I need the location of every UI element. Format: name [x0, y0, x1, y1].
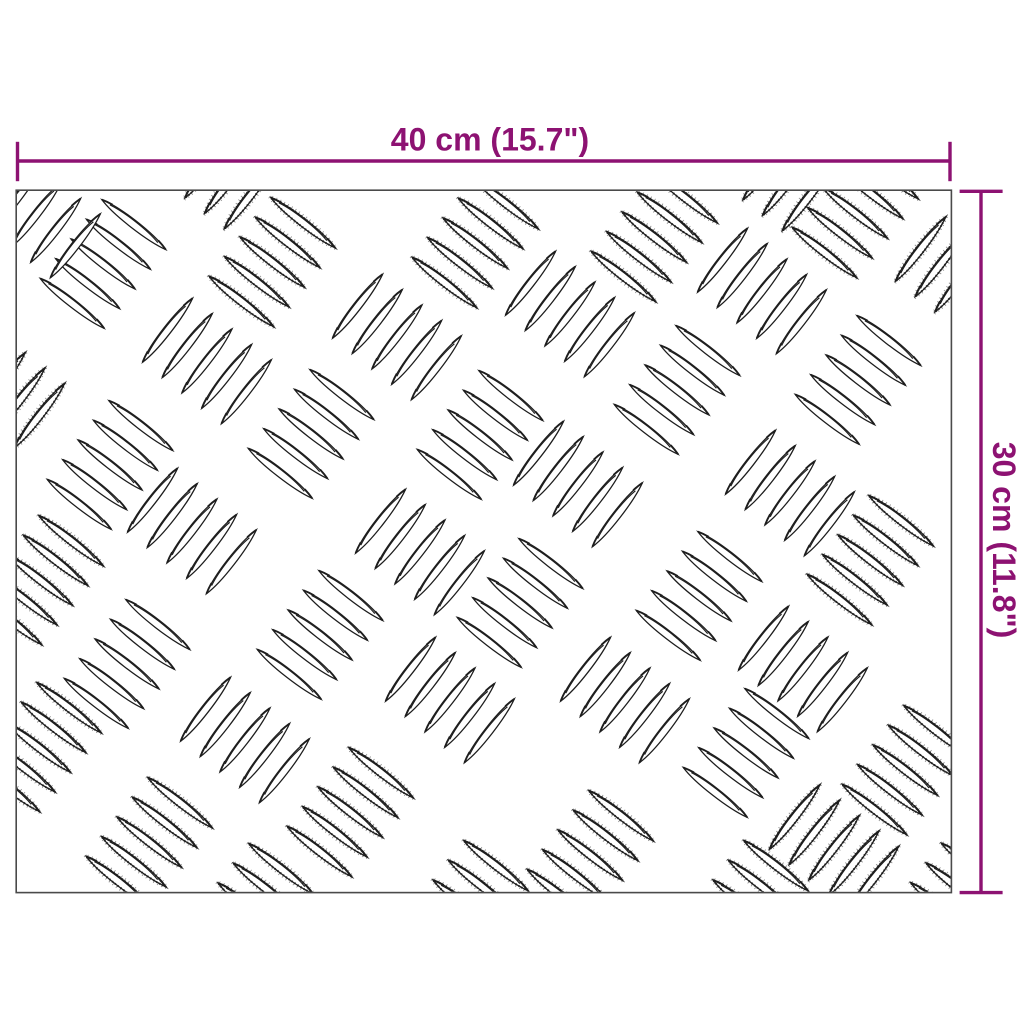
- svg-text:30 cm (11.8"): 30 cm (11.8"): [986, 442, 1022, 639]
- svg-text:40 cm (15.7"): 40 cm (15.7"): [391, 122, 589, 158]
